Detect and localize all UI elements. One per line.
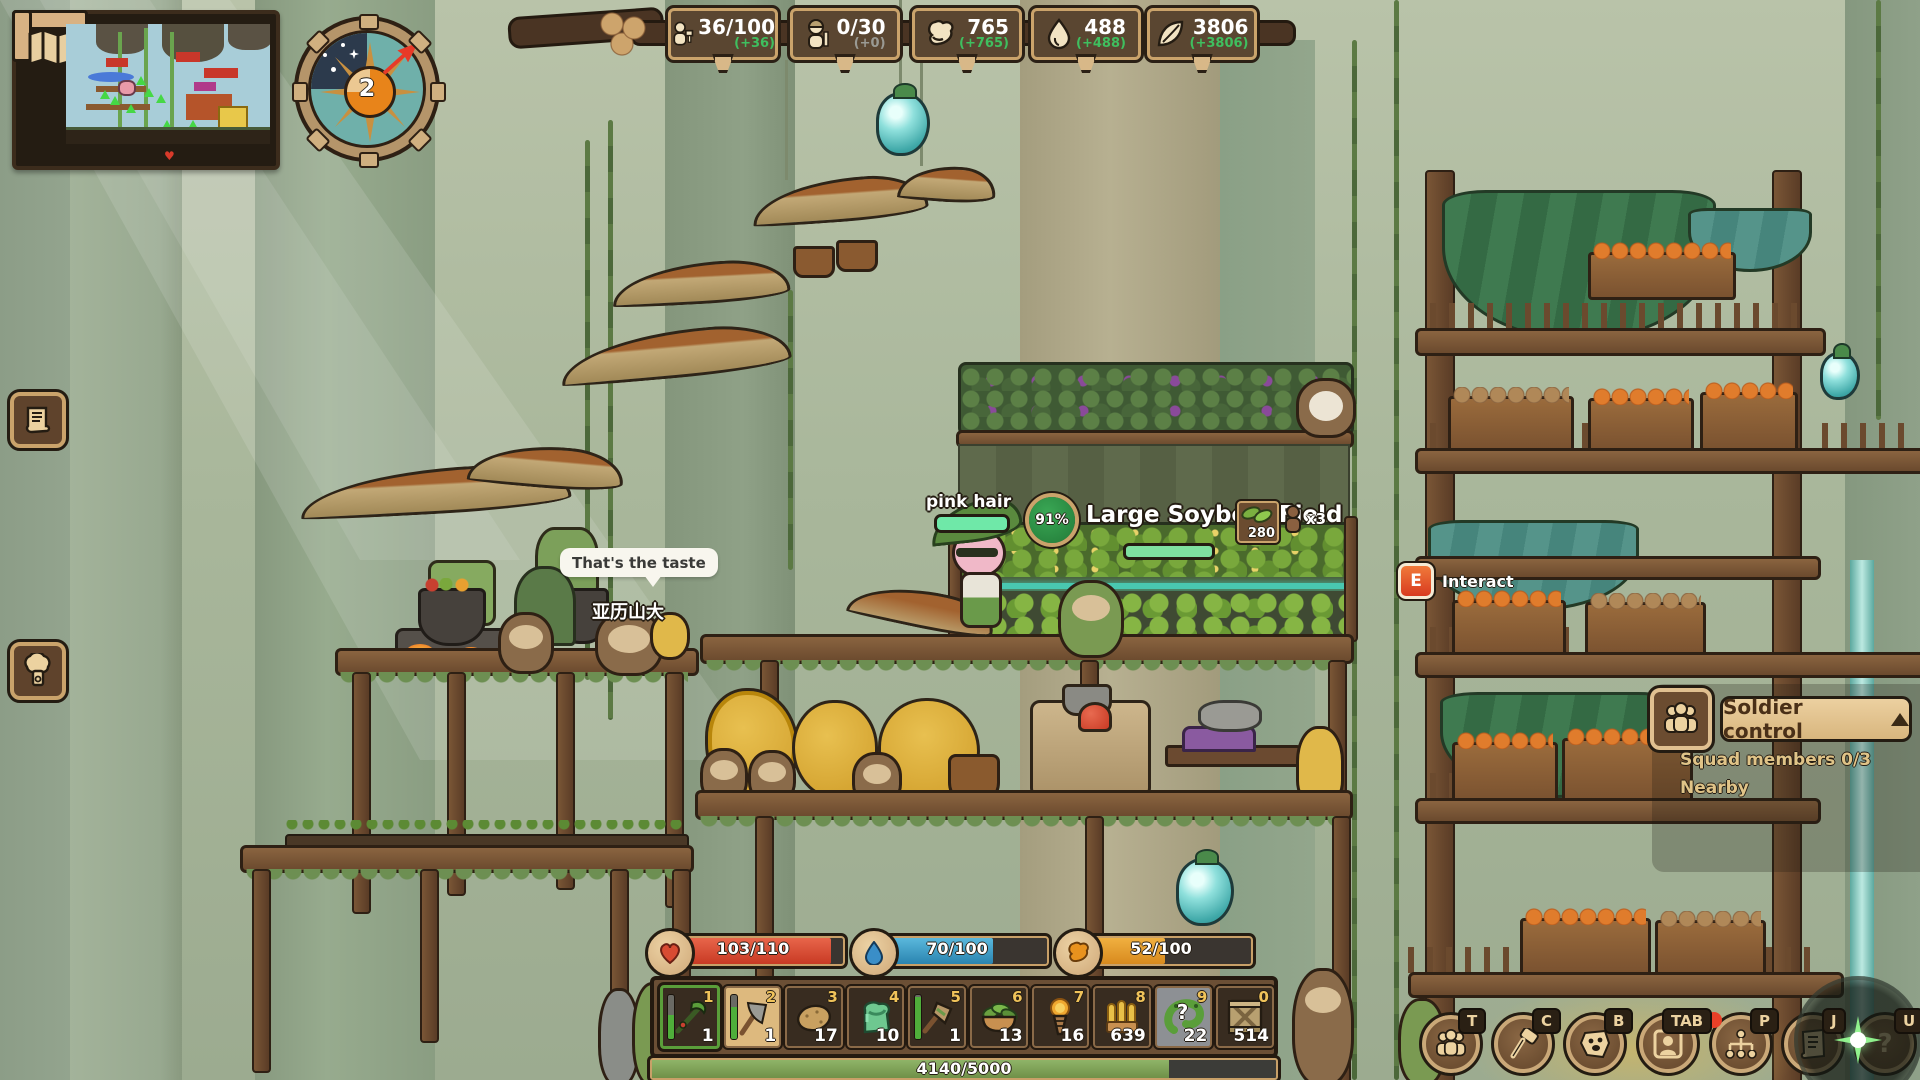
quests-button[interactable] (10, 392, 66, 448)
hotkey-J: J (1822, 1008, 1846, 1034)
resource-delta: (+0) (836, 37, 885, 51)
player-glasses (956, 548, 998, 557)
squad-group-icon (1662, 702, 1700, 736)
log-rack (1448, 396, 1574, 452)
slot-key: 4 (889, 988, 899, 1006)
hotbar-slot-5[interactable]: 5 1 (908, 986, 966, 1048)
resource-soldiers: 0/30 (+0) (790, 8, 900, 60)
support-pole (252, 869, 271, 1073)
hotbar-slot-10[interactable]: 0 514 (1216, 986, 1274, 1048)
resource-value: 488 (1076, 17, 1126, 37)
game-screen: That's the taste 亚历山大 pink hair 91% Larg… (0, 0, 1920, 1080)
map-building (194, 82, 216, 91)
map-unit-marker (126, 104, 136, 113)
hotkey-U: U (1894, 1008, 1920, 1034)
field-progress-badge: 91% (1029, 497, 1075, 543)
carrot-rack (1452, 742, 1558, 804)
star (323, 53, 327, 57)
carrot-rack (1588, 252, 1736, 300)
soldier-group-button[interactable] (1650, 688, 1712, 750)
interact-label: Interact (1442, 572, 1514, 591)
leaf-icon (1156, 19, 1186, 49)
resource-delta: (+765) (959, 37, 1009, 51)
dial-plank (292, 82, 308, 102)
npc-name-label: 亚历山大 (592, 598, 664, 624)
creature-icon (1579, 1029, 1611, 1059)
carrot-rack (1700, 392, 1798, 452)
hotkey-P: P (1750, 1008, 1779, 1034)
field-yield-box: 280 (1237, 501, 1279, 543)
food-stomach-icon (925, 19, 955, 49)
rope-coil (596, 10, 658, 58)
vine (1394, 0, 1399, 1080)
hotbar: 1 1 2 1 3 17 4 10 5 1 6 13 (650, 976, 1278, 1058)
resource-value: 3806 (1190, 17, 1249, 37)
map-unit-marker (144, 88, 154, 97)
xp-value: 4140/5000 (652, 1059, 1276, 1078)
slot-count: 639 (1110, 1026, 1146, 1046)
hotkey-B: B (1604, 1008, 1633, 1034)
sign-peg (834, 54, 856, 73)
vine (788, 290, 793, 570)
soldier-icon (804, 18, 832, 50)
health-icon (645, 928, 695, 978)
fence (1822, 423, 1917, 449)
dial-plank (430, 82, 446, 102)
resource-delta: (+3806) (1190, 37, 1249, 51)
hotbar-slot-3[interactable]: 3 17 (785, 986, 843, 1048)
slot-count: 10 (876, 1026, 900, 1046)
field-post (1344, 516, 1358, 642)
map-canopy (96, 24, 148, 54)
slot-count: 13 (999, 1026, 1023, 1046)
player-health-bar (934, 514, 1010, 533)
minimap-view (66, 24, 270, 144)
leaf-platform (897, 163, 997, 206)
vine (1876, 0, 1881, 420)
log-rack (1655, 920, 1766, 976)
field-yield-text: 280 (1248, 526, 1275, 541)
hotbar-slot-7[interactable]: 7 16 (1032, 986, 1090, 1048)
slot-key: 3 (827, 988, 837, 1006)
resource-value: 765 (959, 17, 1009, 37)
structure-beam (1415, 448, 1920, 474)
scroll-note-icon (22, 404, 54, 436)
carrot-rack (1452, 600, 1566, 658)
sparkle-core (1850, 1032, 1866, 1048)
slot-key: 1 (703, 988, 713, 1006)
interact-prompt: E Interact (1398, 563, 1514, 599)
mystery-mark: ? (1177, 1000, 1189, 1024)
soybean-field (956, 522, 1354, 640)
resource-workers: 36/100 (+36) (668, 8, 778, 60)
resource-delta: (+488) (1076, 37, 1126, 51)
slot-count: 17 (814, 1026, 838, 1046)
player-name-label: pink hair (926, 492, 1011, 512)
structure-beam (1415, 652, 1920, 678)
owl-npc (498, 612, 554, 674)
resource-delta: (+36) (698, 37, 775, 51)
map-building (204, 68, 238, 78)
map-canopy (228, 24, 270, 50)
cauldron (418, 588, 486, 646)
structure-beam (1415, 328, 1826, 356)
interact-key: E (1398, 563, 1434, 599)
dial-plank (359, 14, 379, 30)
minimap[interactable]: ♥ (12, 10, 280, 170)
hotbar-slot-6[interactable]: 6 13 (970, 986, 1028, 1048)
speech-bubble: That's the taste (560, 548, 718, 577)
resource-value: 0/30 (836, 17, 885, 37)
machine-knob (1078, 702, 1112, 732)
skull-owl (1296, 378, 1356, 438)
map-heart-marker: ♥ (164, 149, 175, 163)
slot-key: 9 (1197, 988, 1207, 1006)
soybean-icon (1240, 504, 1274, 526)
day-night-dial: 2 (294, 16, 440, 162)
slot-count: 514 (1233, 1026, 1269, 1046)
field-progress-text: 91% (1035, 512, 1069, 528)
day-number: 2 (294, 74, 440, 102)
slot-count: 1 (764, 1026, 776, 1046)
carrot-rack (1588, 398, 1694, 452)
fence (1430, 303, 1810, 329)
resource-water: 488 (+488) (1031, 8, 1141, 60)
field-worker-icon (1282, 505, 1304, 535)
slot-count: 16 (1060, 1026, 1084, 1046)
map-unit-marker (156, 94, 166, 103)
map-building (106, 58, 128, 67)
sign-peg (956, 54, 978, 73)
hotbar-slot-9[interactable]: ? 9 22 (1155, 986, 1213, 1048)
slot-count: 1 (702, 1026, 714, 1046)
soy-bushes-front (959, 591, 1351, 635)
speech-tail (644, 575, 662, 587)
tree-icon (21, 653, 55, 689)
gear-pile (1198, 700, 1262, 732)
player-body (960, 572, 1002, 628)
speech-text: That's the taste (572, 554, 706, 572)
dial-plank (359, 152, 379, 168)
hanging-pot (836, 240, 878, 272)
mushroom-npc (1292, 968, 1354, 1080)
map-unit-marker (110, 96, 120, 105)
hotbar-slot-1[interactable]: 1 1 (660, 985, 720, 1049)
field-worker-count: x3 (1306, 510, 1326, 528)
log-rack (1585, 602, 1706, 658)
support-pole (420, 869, 439, 1043)
map-unit-marker (136, 76, 146, 85)
structure-beam (1408, 972, 1844, 998)
slot-count: 1 (949, 1026, 961, 1046)
field-growth-bar (1123, 543, 1215, 560)
water-icon (849, 928, 899, 978)
owl-farmer (1058, 580, 1124, 658)
hotbar-slot-8[interactable]: 8 639 (1093, 986, 1151, 1048)
map-ground (66, 127, 270, 144)
field-select-glow (959, 583, 1351, 589)
map-player-dot (118, 80, 136, 96)
leaf-fringe (706, 660, 1342, 675)
star (341, 43, 345, 47)
water-drop-icon (1046, 18, 1072, 50)
squad-members-text: Squad members 0/3 (1680, 750, 1871, 770)
resource-food: 765 (+765) (912, 8, 1022, 60)
slot-count: 22 (1184, 1026, 1208, 1046)
food-icon (1053, 928, 1103, 978)
tree-info-button[interactable] (10, 642, 66, 700)
eggplant-crops (958, 362, 1354, 436)
slot-key: 0 (1259, 988, 1269, 1006)
slot-key: 2 (766, 988, 776, 1006)
collapse-arrow-icon[interactable] (1891, 713, 1909, 726)
slot-key: 6 (1012, 988, 1022, 1006)
slot-key: 7 (1074, 988, 1084, 1006)
nearby-text: Nearby (1680, 778, 1749, 798)
slot-key: 8 (1135, 988, 1145, 1006)
star (331, 67, 336, 72)
soldier-panel-header[interactable]: Soldier control (1720, 696, 1912, 742)
soldier-panel-title: Soldier control (1723, 695, 1881, 743)
leaf-fringe (700, 816, 1340, 831)
carrot-rack (1520, 918, 1651, 976)
hanging-pot (793, 246, 835, 278)
resource-plants: 3806 (+3806) (1147, 8, 1257, 60)
xp-bar: 4140/5000 (650, 1058, 1278, 1080)
worker-icon (671, 18, 694, 50)
veggies (424, 578, 474, 592)
hotkey-TAB: TAB (1662, 1008, 1712, 1034)
slot-key: 5 (951, 988, 961, 1006)
hotkey-T: T (1458, 1008, 1486, 1034)
rope (785, 60, 788, 180)
hotbar-slot-4[interactable]: 4 10 (847, 986, 905, 1048)
resource-value: 36/100 (698, 17, 775, 37)
hotkey-C: C (1532, 1008, 1561, 1034)
hotbar-slot-2[interactable]: 2 1 (724, 986, 782, 1048)
map-unit-marker (100, 90, 110, 99)
map-building (176, 52, 200, 62)
